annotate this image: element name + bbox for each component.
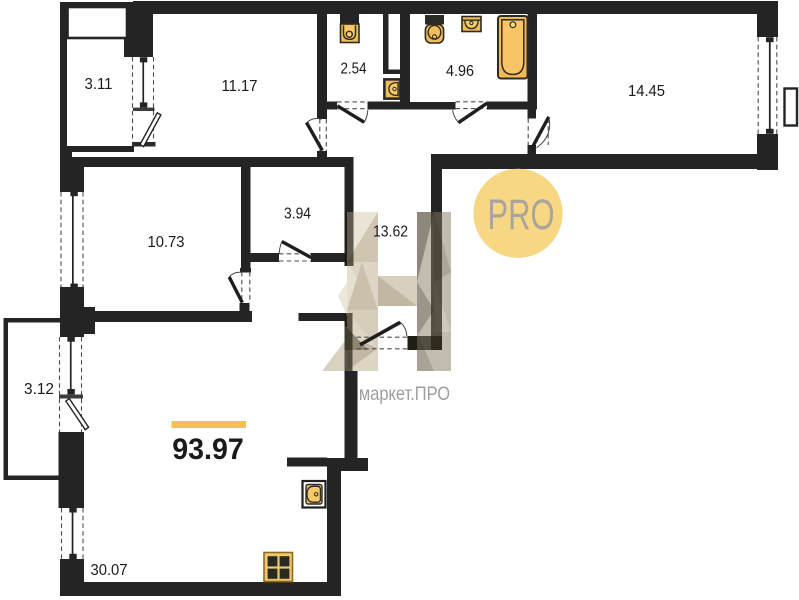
svg-text:PRO: PRO	[488, 191, 555, 239]
svg-text:Нмаркет.ПРО: Нмаркет.ПРО	[347, 383, 450, 405]
svg-text:11.17: 11.17	[222, 78, 258, 95]
svg-text:14.45: 14.45	[628, 83, 665, 100]
svg-text:3.11: 3.11	[85, 76, 113, 93]
svg-text:3.12: 3.12	[24, 381, 54, 398]
svg-text:30.07: 30.07	[91, 562, 128, 579]
svg-text:3.94: 3.94	[284, 206, 311, 223]
svg-text:10.73: 10.73	[148, 234, 185, 251]
svg-text:13.62: 13.62	[373, 224, 408, 241]
svg-text:93.97: 93.97	[172, 433, 244, 466]
svg-text:2.54: 2.54	[341, 61, 367, 78]
svg-text:4.96: 4.96	[446, 63, 474, 80]
